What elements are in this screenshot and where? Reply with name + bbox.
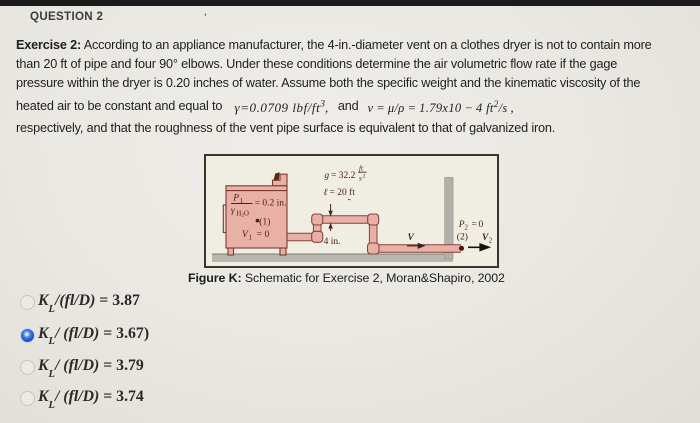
svg-text:ft: ft bbox=[359, 165, 364, 173]
svg-text:2: 2 bbox=[363, 174, 366, 180]
svg-text:ℓ: ℓ bbox=[324, 188, 328, 198]
svg-text:1: 1 bbox=[249, 235, 252, 242]
svg-text:= 0.2 in.: = 0.2 in. bbox=[255, 199, 287, 209]
svg-text:2: 2 bbox=[465, 224, 469, 231]
svg-text:P: P bbox=[232, 194, 239, 204]
svg-text:= 20 ft: = 20 ft bbox=[330, 187, 356, 198]
svg-text:=: = bbox=[472, 220, 477, 230]
svg-text:g: g bbox=[324, 171, 329, 181]
svg-text:(2): (2) bbox=[457, 232, 468, 243]
svg-text:O: O bbox=[244, 210, 249, 217]
svg-text:0: 0 bbox=[265, 230, 270, 240]
svg-text:0: 0 bbox=[479, 220, 484, 230]
svg-text:s: s bbox=[359, 174, 362, 182]
svg-text:2: 2 bbox=[489, 237, 493, 244]
svg-text:(1): (1) bbox=[259, 217, 270, 228]
svg-text:=: = bbox=[257, 230, 262, 240]
svg-text:= 32.2: = 32.2 bbox=[331, 171, 356, 181]
svg-text:γ: γ bbox=[231, 206, 235, 216]
svg-text:4 in.: 4 in. bbox=[324, 237, 341, 247]
svg-text:V: V bbox=[408, 233, 415, 243]
